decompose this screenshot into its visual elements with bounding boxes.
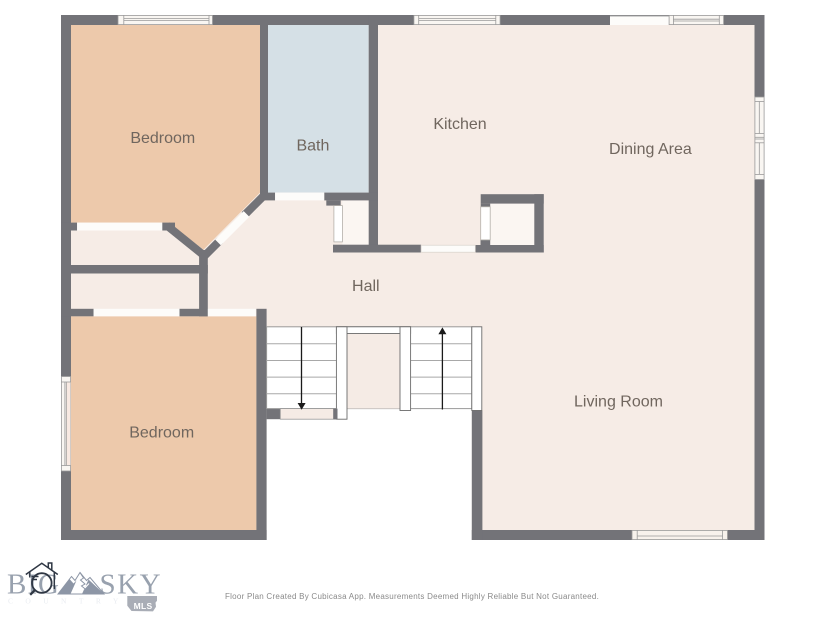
svg-text:Kitchen: Kitchen	[433, 116, 486, 133]
svg-text:Living Room: Living Room	[574, 394, 663, 411]
svg-text:Bath: Bath	[296, 138, 329, 155]
svg-text:Bedroom: Bedroom	[130, 130, 195, 147]
svg-text:Hall: Hall	[352, 278, 380, 295]
svg-text:MLS: MLS	[134, 601, 153, 611]
svg-text:Bedroom: Bedroom	[129, 425, 194, 442]
svg-text:COUNTRY: COUNTRY	[8, 597, 131, 606]
svg-text:Floor Plan Created By Cubicasa: Floor Plan Created By Cubicasa App. Meas…	[225, 592, 599, 601]
svg-text:Dining Area: Dining Area	[609, 141, 692, 158]
